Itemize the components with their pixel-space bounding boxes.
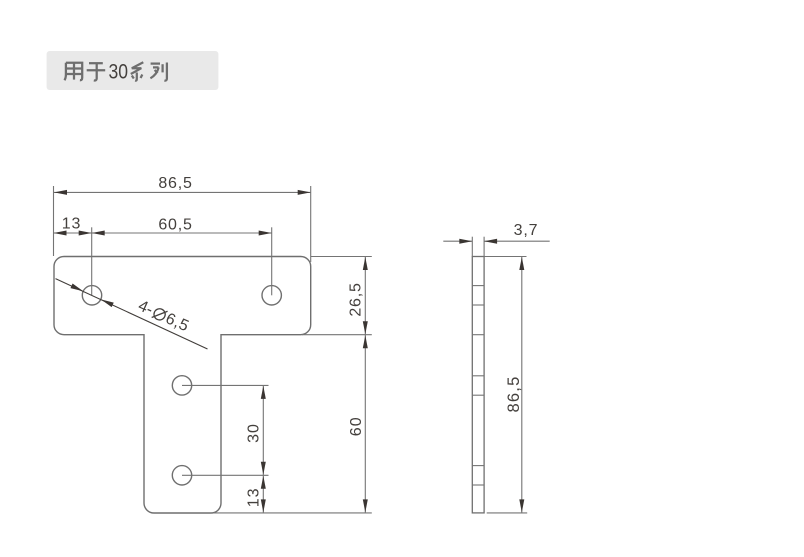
svg-text:30: 30 [109,61,129,84]
svg-text:30: 30 [245,423,262,443]
svg-text:26,5: 26,5 [347,282,364,316]
svg-text:13: 13 [62,216,81,233]
svg-text:13: 13 [246,488,263,508]
svg-text:60: 60 [348,416,365,436]
svg-text:60,5: 60,5 [158,217,192,234]
svg-text:86,5: 86,5 [158,175,192,192]
svg-text:3,7: 3,7 [514,222,539,239]
svg-text:86,5: 86,5 [505,376,523,413]
